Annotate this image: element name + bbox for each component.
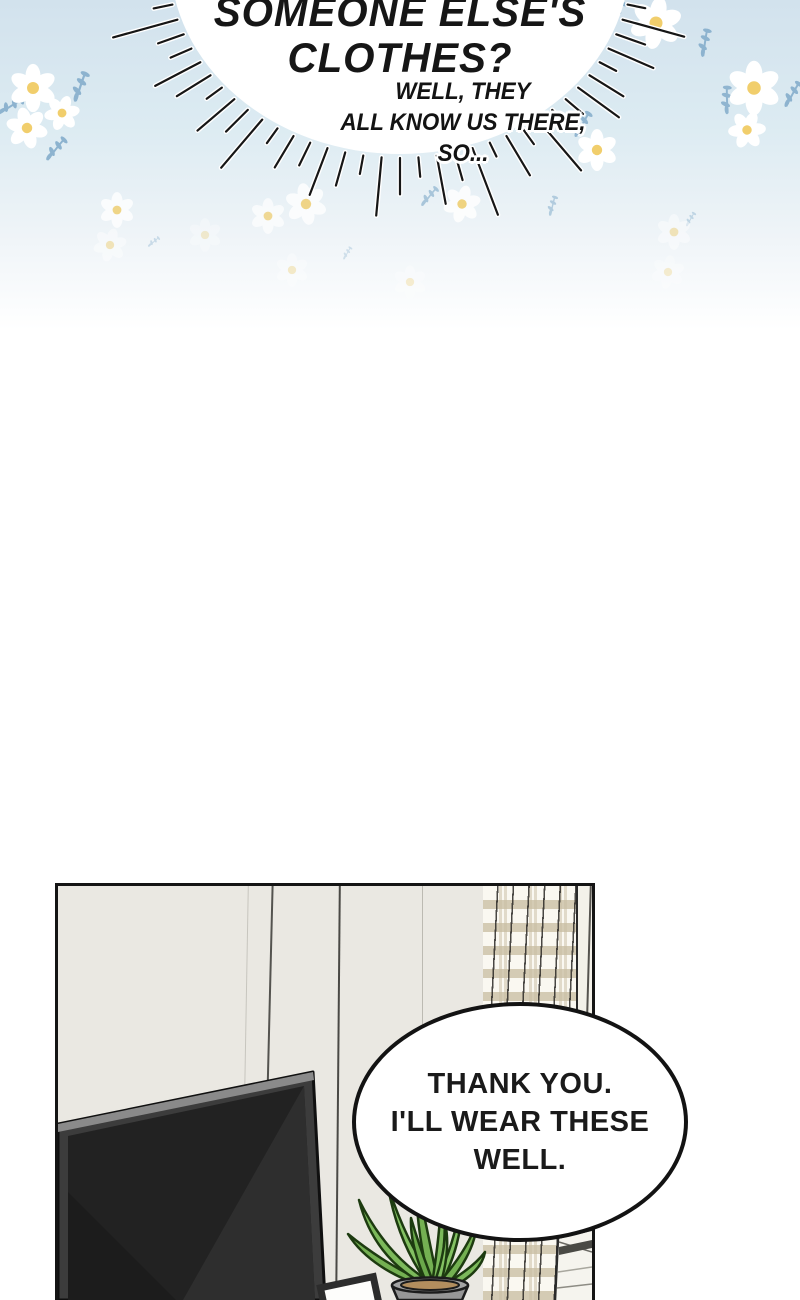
speech-line-1: THANK YOU. <box>428 1065 613 1103</box>
caption-text: WELL, THEY ALL KNOW US THERE, SO... <box>319 76 607 169</box>
caption-line-1: WELL, THEY <box>319 76 607 107</box>
burst-bubble-text: SOMEONE ELSE'S CLOTHES? <box>160 0 640 81</box>
comic-page: SOMEONE ELSE'S CLOTHES? WELL, THEY ALL K… <box>0 0 800 1300</box>
picture-frame <box>320 1277 382 1300</box>
tv <box>58 1072 325 1300</box>
caption-line-3: SO... <box>319 138 607 169</box>
burst-line-2: CLOTHES? <box>160 35 640 81</box>
speech-line-3: WELL. <box>474 1141 567 1179</box>
speech-bubble: THANK YOU. I'LL WEAR THESE WELL. <box>352 1002 688 1242</box>
speech-line-2: I'LL WEAR THESE <box>391 1103 650 1141</box>
burst-line-1: SOMEONE ELSE'S <box>160 0 640 35</box>
drying-rack <box>555 1230 592 1300</box>
caption-line-2: ALL KNOW US THERE, <box>319 107 607 138</box>
